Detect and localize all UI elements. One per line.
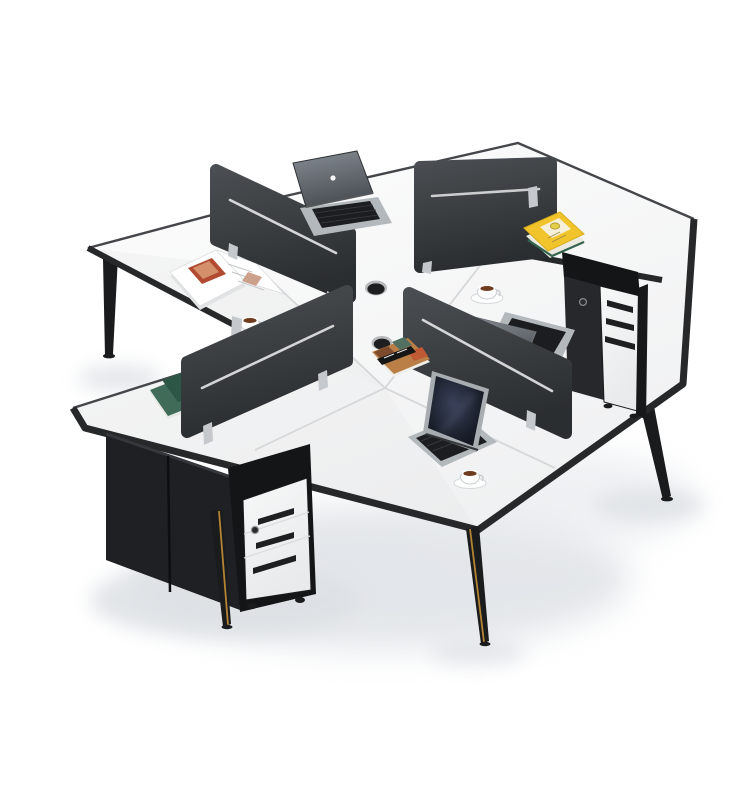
leg-foot-west: [103, 354, 115, 359]
shadow-leg-bottom: [430, 638, 526, 666]
castor-wheel: [295, 597, 305, 603]
divider-clip: [528, 186, 538, 208]
castor-wheel: [247, 603, 257, 609]
coffee-surface: [480, 286, 493, 291]
lock-keyhole-icon: [580, 299, 587, 306]
lock-keyhole-icon: [251, 526, 258, 533]
divider-clip: [422, 261, 432, 274]
mobile-pedestal-left: [228, 444, 316, 612]
leg-foot-east: [661, 497, 673, 502]
pedestal-right-frame: [636, 284, 648, 420]
tapered-leg-west: [103, 256, 118, 356]
castor-wheel: [630, 414, 639, 419]
product-photo-stage: [0, 0, 750, 800]
divider-clip: [203, 422, 213, 445]
lemon-illustration: [550, 223, 559, 229]
divider-face: [420, 163, 551, 267]
leg-foot: [222, 625, 233, 629]
coffee-surface: [463, 471, 476, 476]
leg-foot: [480, 642, 491, 646]
workstation-product-photo: [0, 0, 750, 800]
apple-logo-icon: [330, 175, 335, 180]
divider-panel-2: [420, 163, 551, 274]
castor-wheel: [604, 404, 613, 409]
shadow-leg-right: [595, 489, 705, 521]
coffee-surface: [243, 318, 256, 323]
grommet-hole-1: [367, 283, 384, 294]
